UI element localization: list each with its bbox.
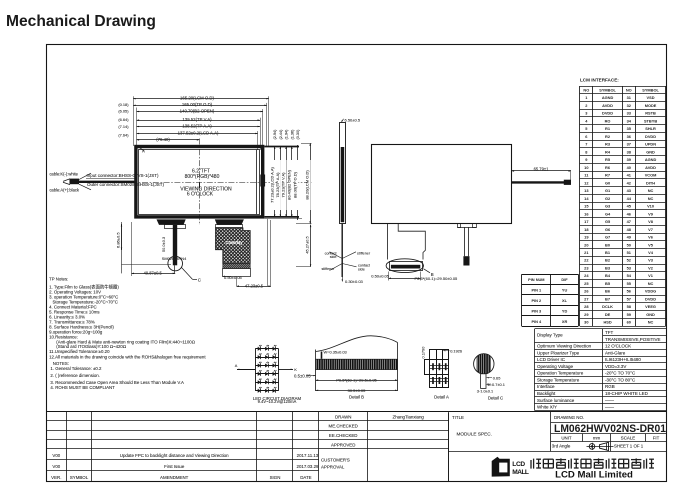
svg-text:FIT: FIT	[653, 435, 660, 440]
svg-text:V2: V2	[648, 265, 654, 270]
svg-text:V9: V9	[648, 211, 654, 216]
svg-text:(1.36): (1.36)	[290, 129, 294, 140]
svg-text:SCALE: SCALE	[621, 435, 635, 440]
svg-text:MODULE SPEC.: MODULE SPEC.	[457, 432, 492, 437]
svg-text:Update FPC to backlight distan: Update FPC to backlight distance and Vie…	[120, 453, 229, 458]
svg-text:W=0.35±0.03: W=0.35±0.03	[324, 349, 347, 354]
svg-text:Anti-Glare: Anti-Glare	[605, 350, 626, 355]
svg-text:B5: B5	[605, 281, 611, 286]
svg-text:V5: V5	[648, 242, 654, 247]
svg-text:(76.40): (76.40)	[156, 137, 170, 142]
svg-text:60: 60	[627, 320, 631, 325]
svg-text:R3: R3	[605, 142, 611, 147]
svg-text:K: K	[294, 367, 297, 372]
svg-text:0.1926: 0.1926	[450, 349, 462, 354]
svg-text:Detail C: Detail C	[488, 395, 503, 400]
svg-text:800*(RGB)*480: 800*(RGB)*480	[185, 174, 220, 180]
svg-text:XR: XR	[562, 319, 568, 324]
svg-text:White X/Y: White X/Y	[537, 405, 557, 410]
svg-text:NC: NC	[648, 320, 654, 325]
svg-text:B3: B3	[605, 265, 611, 270]
svg-text:TFT: TFT	[605, 330, 613, 335]
svg-text:80.40(B2 OPEN): 80.40(B2 OPEN)	[287, 169, 292, 200]
svg-text:RGB: RGB	[605, 384, 615, 389]
svg-text:A: A	[142, 149, 145, 154]
svg-text:9.4V~10.2V@120mA: 9.4V~10.2V@120mA	[258, 399, 297, 404]
svg-text:SHEET 1 OF 1: SHEET 1 OF 1	[614, 444, 644, 449]
svg-text:First Issue: First Issue	[164, 464, 185, 469]
svg-text:79.23(TP V.A): 79.23(TP V.A)	[281, 172, 286, 198]
svg-text:B4: B4	[605, 273, 611, 278]
svg-text:18-CHIP WHITE LED: 18-CHIP WHITE LED	[605, 391, 649, 396]
svg-text:(2.44): (2.44)	[279, 129, 283, 140]
svg-text:-20°C TO 70°C: -20°C TO 70°C	[605, 371, 636, 376]
svg-text:20: 20	[584, 242, 588, 247]
svg-text:G1: G1	[605, 188, 611, 193]
svg-text:-30°C TO 80°C: -30°C TO 80°C	[605, 377, 636, 382]
svg-text:R1: R1	[605, 126, 611, 131]
svg-text:165.00(TP O.D): 165.00(TP O.D)	[182, 102, 213, 107]
svg-text:78.23(TP A.A): 78.23(TP A.A)	[275, 172, 280, 198]
svg-text:0.1790: 0.1790	[421, 346, 426, 359]
svg-text:V6: V6	[648, 235, 654, 240]
svg-text:0.65: 0.65	[493, 376, 501, 381]
svg-text:165.20(LCM O.D): 165.20(LCM O.D)	[180, 96, 214, 101]
svg-text:DATE: DATE	[300, 475, 311, 480]
svg-text:G4: G4	[605, 211, 611, 216]
svg-text:VSD: VSD	[647, 95, 655, 100]
svg-text:0.50±0.05: 0.50±0.05	[224, 275, 243, 280]
svg-text:Coverlay: Coverlay	[226, 240, 244, 245]
svg-text:SYMBOL: SYMBOL	[599, 87, 616, 92]
svg-text:G3: G3	[605, 204, 611, 209]
svg-text:PIN 2: PIN 2	[531, 298, 542, 303]
svg-text:2017.11.13: 2017.11.13	[297, 453, 319, 458]
svg-text:(1.94): (1.94)	[285, 129, 289, 140]
svg-text:GND: GND	[646, 312, 655, 317]
svg-text:ZhangTianxiang: ZhangTianxiang	[393, 414, 425, 419]
svg-text:6.86±0.5: 6.86±0.5	[115, 232, 120, 248]
svg-text:HSD: HSD	[603, 320, 611, 325]
svg-text:Mechanical Drawing: Mechanical Drawing	[6, 13, 156, 30]
svg-text:4. ROHS MUST BE COMPLIANT: 4. ROHS MUST BE COMPLIANT	[50, 385, 115, 390]
svg-text:TP Notes:: TP Notes:	[49, 276, 68, 281]
svg-text:138.52(TP A.A): 138.52(TP A.A)	[182, 123, 212, 128]
svg-text:Optimum Viewing Direction: Optimum Viewing Direction	[537, 344, 592, 349]
svg-text:57: 57	[627, 296, 631, 301]
svg-text:NC: NC	[648, 188, 654, 193]
svg-text:50.0±0.3: 50.0±0.3	[161, 237, 166, 252]
svg-text:Upper Ploarizer Type: Upper Ploarizer Type	[537, 350, 580, 355]
svg-text:12 O'CLOCK: 12 O'CLOCK	[605, 344, 631, 349]
svg-text:PIN 3: PIN 3	[531, 308, 542, 313]
svg-text:YD: YD	[562, 308, 568, 313]
svg-text:Outer connector:SM02B-BHSS-1(J: Outer connector:SM02B-BHSS-1(JST)	[87, 182, 165, 187]
svg-text:LCM INTERFACE:: LCM INTERFACE:	[580, 78, 619, 83]
svg-text:R6: R6	[605, 165, 611, 170]
svg-text:2017.03.29: 2017.03.29	[297, 464, 320, 469]
svg-text:Operation Temperature: Operation Temperature	[537, 371, 584, 376]
svg-text:G5: G5	[605, 219, 611, 224]
svg-text:side: side	[330, 255, 337, 259]
svg-text:Display Type: Display Type	[537, 333, 563, 338]
svg-text:VDD=3.3V: VDD=3.3V	[605, 364, 626, 369]
svg-text:NO: NO	[583, 87, 589, 92]
svg-text:cable:K(-):white: cable:K(-):white	[50, 171, 79, 176]
svg-text:27: 27	[584, 296, 588, 301]
svg-text:Input connector:BHSS-02VS-1(JS: Input connector:BHSS-02VS-1(JST)	[87, 173, 160, 178]
svg-text:V3: V3	[648, 258, 654, 263]
svg-text:SYMBOL: SYMBOL	[642, 87, 659, 92]
svg-text:50: 50	[627, 242, 631, 247]
svg-text:VCOM: VCOM	[645, 173, 657, 178]
svg-text:30: 30	[584, 320, 588, 325]
svg-text:DE: DE	[605, 312, 611, 317]
svg-text:B6: B6	[605, 289, 611, 294]
svg-text:AGND: AGND	[645, 157, 657, 162]
svg-text:VEEG: VEEG	[645, 304, 656, 309]
svg-text:V4: V4	[648, 250, 654, 255]
svg-text:V8: V8	[648, 219, 654, 224]
svg-text:(6.05): (6.05)	[118, 109, 129, 114]
svg-text:Storage Temperature: Storage Temperature	[537, 377, 580, 382]
svg-text:——: ——	[605, 398, 615, 403]
svg-text:SHLR: SHLR	[645, 126, 656, 131]
svg-text:GND: GND	[646, 149, 655, 154]
svg-text:7: 7	[585, 142, 587, 147]
svg-text:0.5±0.05: 0.5±0.05	[294, 374, 311, 379]
svg-text:G6: G6	[605, 227, 611, 232]
svg-text:APPROVAL: APPROVAL	[321, 465, 345, 470]
svg-text:RO: RO	[605, 118, 611, 123]
svg-text:LM062HWV02NS-DR01: LM062HWV02NS-DR01	[554, 423, 666, 435]
svg-text:R2: R2	[605, 134, 611, 139]
svg-text:AVDD: AVDD	[645, 165, 656, 170]
svg-text:0.30±0.03: 0.30±0.03	[345, 279, 364, 284]
svg-text:137.52±0.2(LCD A.A): 137.52±0.2(LCD A.A)	[178, 130, 219, 135]
svg-text:3rd Angle: 3rd Angle	[552, 444, 571, 449]
svg-text:DITH: DITH	[646, 180, 655, 185]
svg-text:V7: V7	[648, 227, 653, 232]
svg-text:ILI6123H+ILI5480: ILI6123H+ILI5480	[605, 357, 641, 362]
svg-text:R5: R5	[605, 157, 611, 162]
svg-text:CUSTOMER'S: CUSTOMER'S	[321, 458, 350, 463]
svg-text:VDDG: VDDG	[645, 289, 656, 294]
svg-text:6.50±0.5: 6.50±0.5	[345, 117, 361, 122]
svg-text:140.70(B2 OPEN): 140.70(B2 OPEN)	[180, 108, 215, 113]
svg-text:(0.30): (0.30)	[296, 129, 300, 140]
svg-text:MALL: MALL	[512, 469, 529, 476]
svg-text:NO: NO	[626, 87, 632, 92]
svg-text:G2: G2	[605, 196, 611, 201]
svg-text:B1: B1	[605, 250, 611, 255]
svg-text:Interface: Interface	[537, 384, 555, 389]
svg-text:77.23±0.2(LCD A.A): 77.23±0.2(LCD A.A)	[269, 166, 274, 202]
svg-text:LCD: LCD	[512, 461, 525, 468]
svg-text:B2: B2	[605, 258, 611, 263]
svg-text:G0: G0	[605, 180, 610, 185]
svg-text:V1: V1	[648, 273, 654, 278]
svg-text:(7.14): (7.14)	[118, 124, 129, 129]
svg-text:STBYB: STBYB	[644, 118, 657, 123]
svg-text:49.87±0.5: 49.87±0.5	[144, 271, 163, 276]
svg-text:V10: V10	[647, 204, 654, 209]
svg-text:1. General Tolerance: ±0.2: 1. General Tolerance: ±0.2	[50, 366, 102, 371]
svg-text:NC: NC	[648, 196, 654, 201]
svg-text:0.50±0.05: 0.50±0.05	[371, 274, 390, 279]
svg-text:P0.5*(60-1)=29.50±0.05: P0.5*(60-1)=29.50±0.05	[415, 276, 459, 281]
svg-text:(0.18): (0.18)	[118, 102, 129, 107]
svg-text:C: C	[198, 277, 201, 282]
svg-text:LCD Mall Limited: LCD Mall Limited	[555, 470, 633, 481]
svg-text:V00: V00	[52, 453, 60, 458]
svg-text:W:0.7±0.1: W:0.7±0.1	[487, 382, 505, 387]
svg-text:47: 47	[627, 219, 631, 224]
svg-text:DVDD: DVDD	[602, 111, 613, 116]
svg-text:MODE: MODE	[645, 103, 657, 108]
svg-text:AGND: AGND	[602, 95, 614, 100]
svg-text:V00: V00	[52, 464, 60, 469]
svg-text:NC: NC	[648, 281, 654, 286]
svg-text:SM02B-BHN4: SM02B-BHN4	[162, 256, 187, 261]
svg-text:Detail B: Detail B	[349, 395, 364, 400]
svg-text:EE.CHECKED: EE.CHECKED	[329, 433, 358, 438]
svg-text:6 O'CLOCK: 6 O'CLOCK	[187, 191, 214, 197]
svg-text:139.52(TP V.A): 139.52(TP V.A)	[182, 117, 212, 122]
svg-text:TITLE: TITLE	[452, 415, 464, 420]
svg-text:XL: XL	[562, 298, 568, 303]
svg-text:DCLK: DCLK	[602, 304, 613, 309]
svg-text:stiffener: stiffener	[321, 267, 335, 271]
svg-text:side: side	[358, 267, 365, 271]
svg-text:TRANSMISSIVE,POSITIVE: TRANSMISSIVE,POSITIVE	[605, 337, 661, 342]
svg-text:11.Unspecified Tolerance:±0.20: 11.Unspecified Tolerance:±0.20	[49, 349, 110, 354]
svg-text:AMENDMENT: AMENDMENT	[160, 475, 189, 480]
svg-text:10: 10	[584, 165, 588, 170]
svg-text:stiffener: stiffener	[357, 251, 371, 255]
svg-text:UPDN: UPDN	[645, 142, 656, 147]
svg-text:RSTB: RSTB	[645, 111, 656, 116]
svg-text:PIN NUM: PIN NUM	[528, 277, 544, 282]
svg-text:(2.94): (2.94)	[273, 129, 277, 140]
svg-text:Detail A: Detail A	[434, 395, 449, 400]
svg-text:PIN 4: PIN 4	[531, 319, 542, 324]
svg-text:DRAWING NO.: DRAWING NO.	[554, 415, 584, 420]
svg-text:17: 17	[584, 219, 588, 224]
svg-text:P0.5*(60-1)=29.5±0.05: P0.5*(60-1)=29.5±0.05	[336, 378, 377, 383]
svg-text:(6.64): (6.64)	[118, 117, 129, 122]
svg-text:R4: R4	[605, 149, 611, 154]
svg-text:DRAWN: DRAWN	[335, 414, 351, 419]
svg-text:40: 40	[627, 165, 631, 170]
svg-text:A: A	[235, 363, 238, 368]
svg-text:DVDD: DVDD	[645, 134, 656, 139]
svg-text:65.79±1: 65.79±1	[534, 166, 549, 171]
svg-text:R7: R7	[605, 173, 610, 178]
svg-text:UNIT: UNIT	[561, 435, 572, 440]
svg-text:Surface luminance: Surface luminance	[537, 398, 575, 403]
svg-text:(7.64): (7.64)	[118, 132, 129, 137]
svg-text:B7: B7	[605, 296, 610, 301]
svg-text:12.All materials in the drawin: 12.All materials in the drawing coincide…	[49, 354, 206, 359]
svg-text:2. ( )reference dimension.: 2. ( )reference dimension.	[50, 373, 100, 378]
svg-text:45.27±0.5: 45.27±0.5	[305, 236, 310, 253]
svg-text:PIN 1: PIN 1	[531, 288, 542, 293]
svg-text:VER.: VER.	[51, 475, 61, 480]
svg-text:88.00(TP O.D): 88.00(TP O.D)	[292, 171, 297, 198]
svg-text:ME.CHECKED: ME.CHECKED	[329, 424, 358, 429]
svg-text:DVDD: DVDD	[645, 296, 656, 301]
svg-text:SYMBOL: SYMBOL	[70, 475, 89, 480]
svg-text:Operating Voltage: Operating Voltage	[537, 364, 574, 369]
svg-text:YU: YU	[562, 288, 568, 293]
svg-text:mm: mm	[593, 435, 601, 440]
svg-text:3-1.0±0.1: 3-1.0±0.1	[477, 388, 493, 393]
svg-text:B0: B0	[605, 242, 610, 247]
svg-text:APPROVED: APPROVED	[331, 442, 355, 447]
svg-text:88.20(LCM O.D): 88.20(LCM O.D)	[305, 170, 310, 200]
svg-text:DIF: DIF	[561, 277, 568, 282]
svg-text:AVDD: AVDD	[602, 103, 613, 108]
svg-text:G7: G7	[605, 235, 610, 240]
svg-text:cable:A(+):black: cable:A(+):black	[50, 187, 80, 192]
svg-text:47.23±0.5: 47.23±0.5	[245, 284, 264, 289]
svg-text:SIGN: SIGN	[270, 475, 281, 480]
svg-text:——: ——	[605, 405, 615, 410]
svg-text:30.5±0.05: 30.5±0.05	[348, 388, 367, 393]
svg-text:Backlight: Backlight	[537, 391, 556, 396]
svg-text:LCD Driver IC: LCD Driver IC	[537, 357, 566, 362]
svg-text:37: 37	[627, 142, 631, 147]
